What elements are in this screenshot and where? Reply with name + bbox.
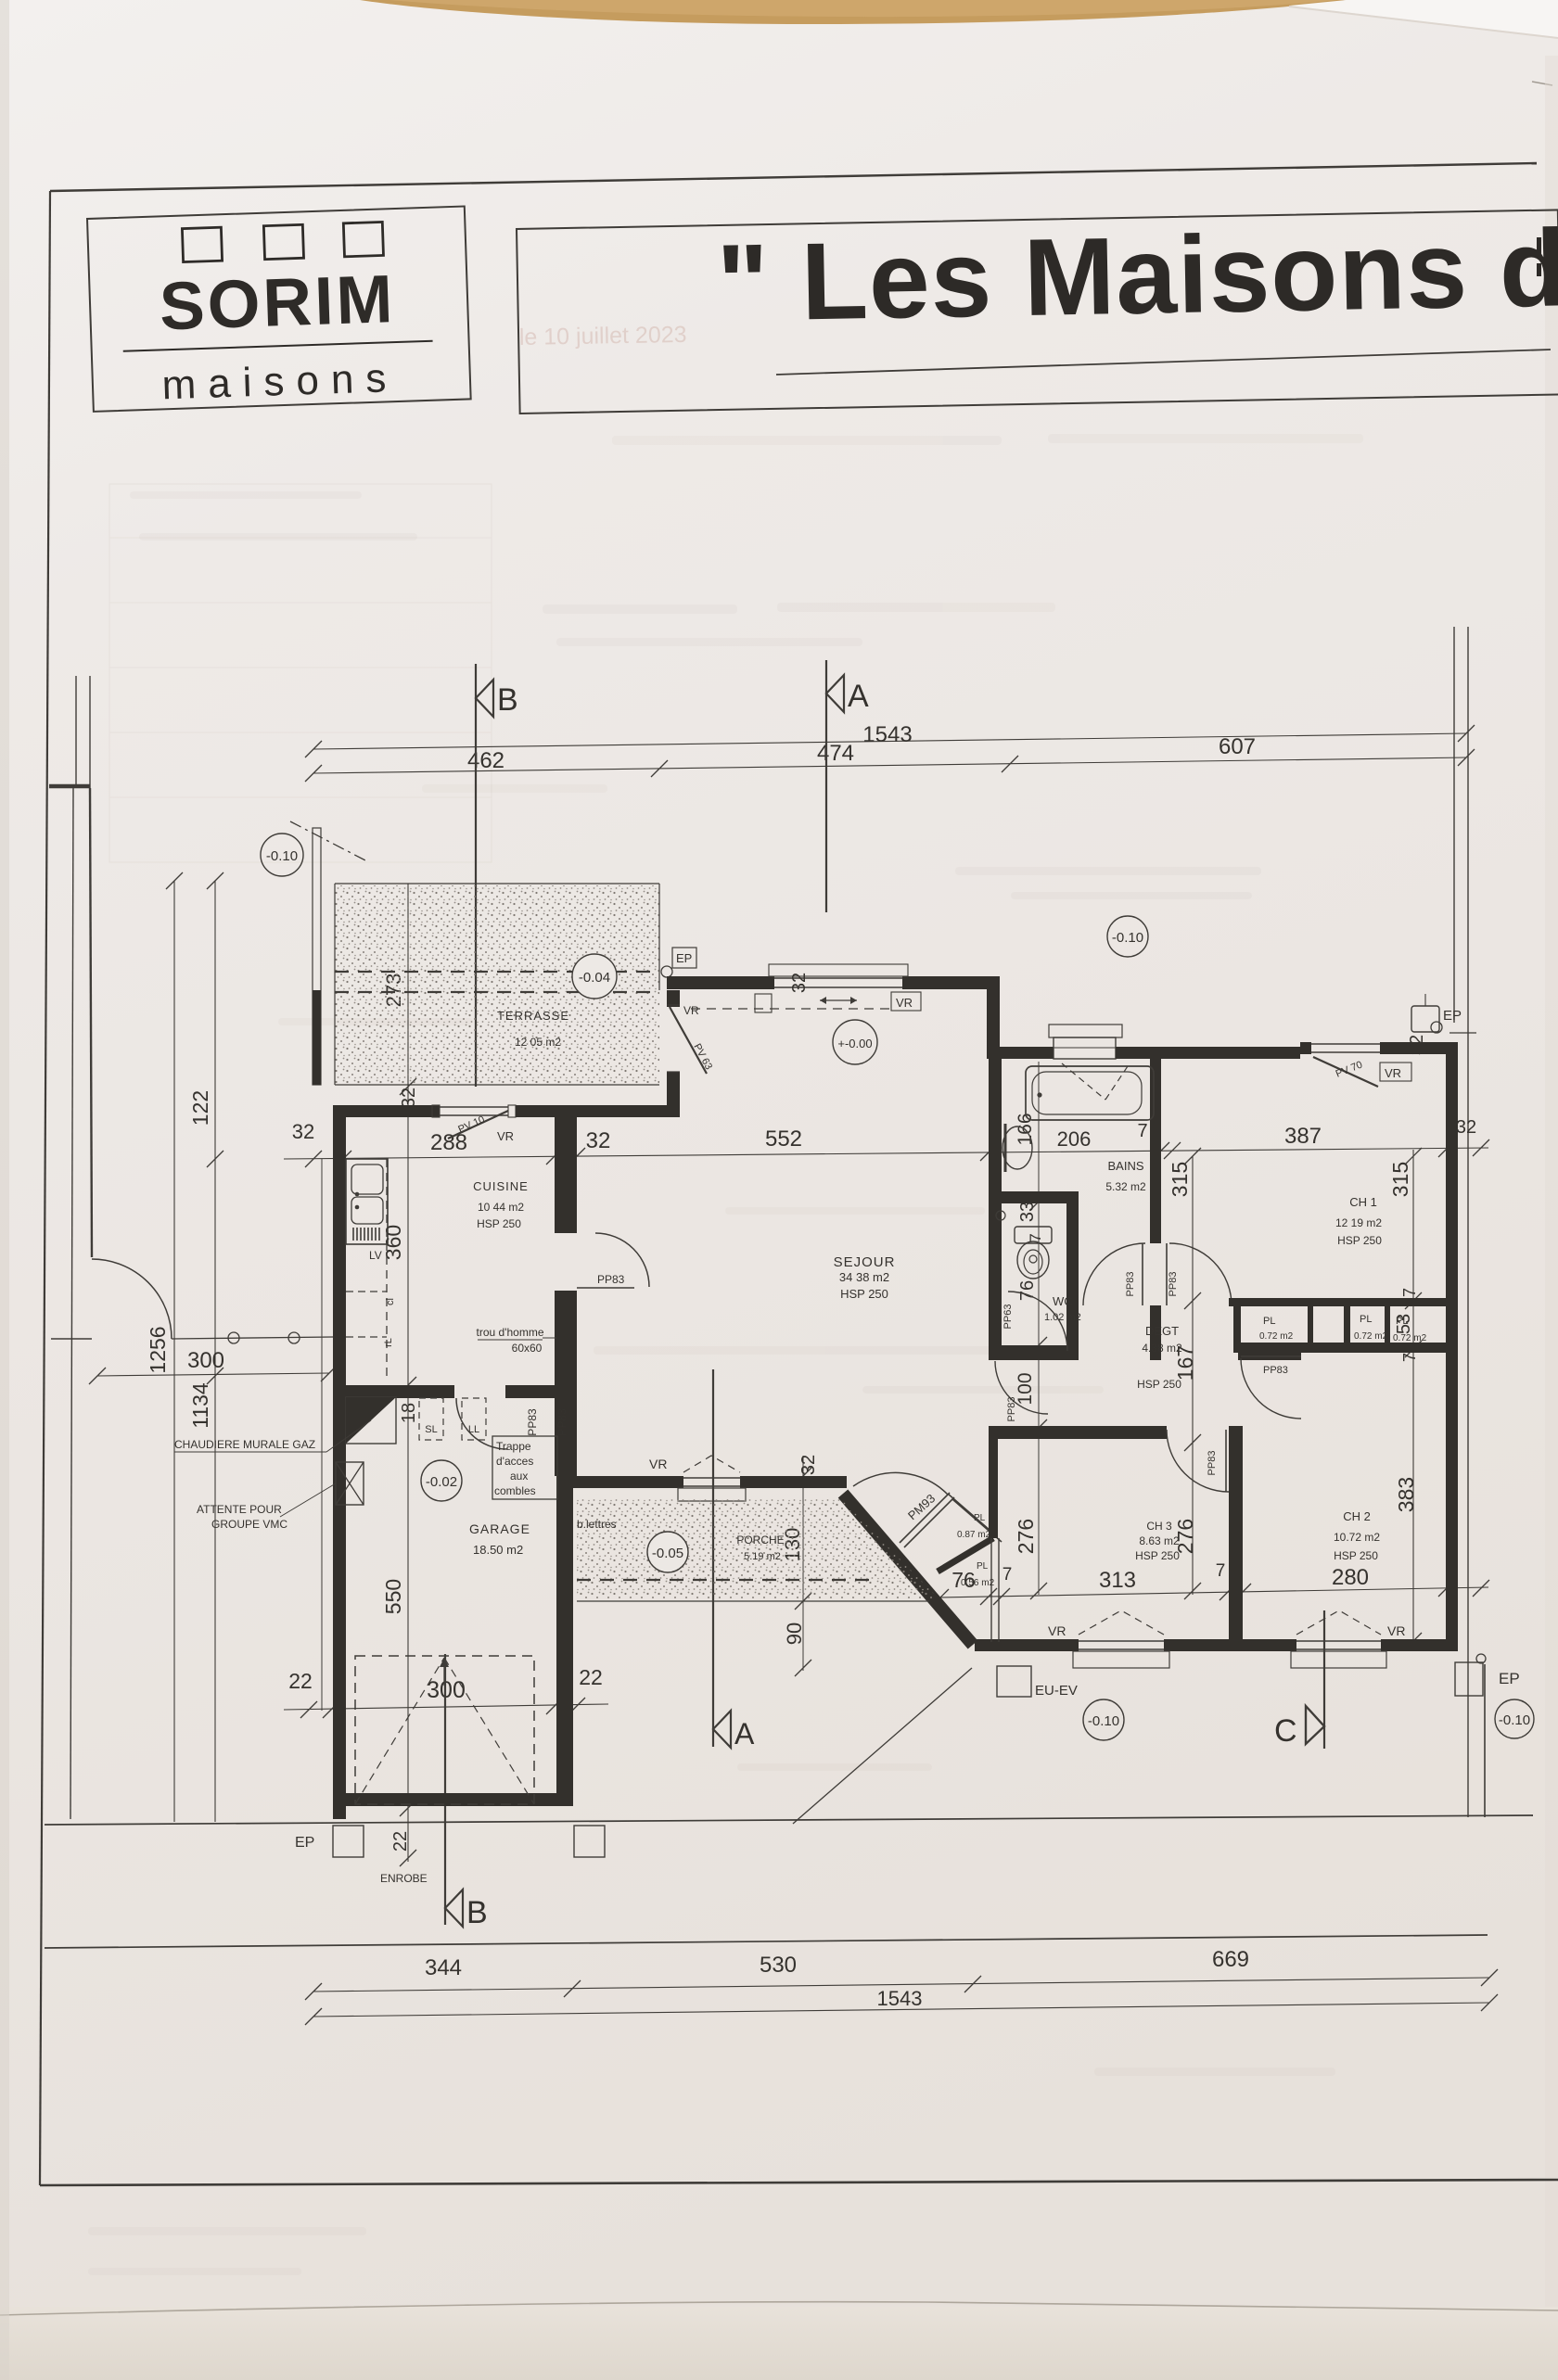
svg-text:" Les Maisons d: " Les Maisons d: [716, 207, 1558, 345]
svg-text:607: 607: [1219, 734, 1256, 759]
svg-text:PL: PL: [1360, 1314, 1372, 1325]
svg-text:-0.10: -0.10: [266, 848, 298, 864]
svg-text:12 19 m2: 12 19 m2: [1335, 1216, 1382, 1229]
svg-text:1134: 1134: [188, 1382, 212, 1429]
svg-text:18: 18: [399, 1403, 419, 1423]
svg-text:C: C: [1274, 1713, 1297, 1749]
svg-text:PP83: PP83: [526, 1408, 539, 1436]
svg-text:VR: VR: [497, 1129, 514, 1143]
svg-text:34 38 m2: 34 38 m2: [839, 1270, 889, 1284]
svg-text:PP83: PP83: [597, 1273, 625, 1286]
svg-text:550: 550: [381, 1579, 405, 1614]
svg-text:10.72 m2: 10.72 m2: [1334, 1531, 1380, 1544]
svg-text:HSP 250: HSP 250: [1337, 1234, 1382, 1247]
svg-text:EP: EP: [1443, 1008, 1462, 1024]
svg-text:VR: VR: [1048, 1623, 1066, 1638]
svg-text:0.72 m2: 0.72 m2: [1354, 1331, 1388, 1342]
svg-text:0.72 m2: 0.72 m2: [1393, 1333, 1427, 1343]
svg-text:PP83: PP83: [1207, 1451, 1218, 1476]
svg-text:276: 276: [1014, 1519, 1038, 1554]
svg-text:32: 32: [292, 1120, 314, 1143]
svg-text:HSP 250: HSP 250: [1137, 1378, 1181, 1391]
svg-text:PP83: PP83: [1263, 1365, 1288, 1376]
svg-text:7: 7: [1002, 1565, 1013, 1585]
svg-text:7: 7: [1400, 1288, 1419, 1297]
svg-text:VR: VR: [683, 1004, 699, 1017]
svg-text:4.38 m2: 4.38 m2: [1142, 1342, 1182, 1355]
svg-text:7: 7: [1400, 1353, 1419, 1362]
svg-text:LL: LL: [468, 1424, 479, 1435]
svg-text:PL: PL: [1263, 1316, 1275, 1327]
svg-text:0.72 m2: 0.72 m2: [1259, 1331, 1294, 1342]
svg-text:313: 313: [1099, 1568, 1136, 1593]
svg-text:PP83: PP83: [556, 1408, 568, 1436]
svg-text:315: 315: [1388, 1162, 1412, 1197]
svg-text:-0.05: -0.05: [652, 1546, 683, 1561]
svg-text:b.lettres: b.lettres: [577, 1518, 617, 1531]
svg-text:HSP 250: HSP 250: [1135, 1549, 1180, 1562]
svg-text:-0.10: -0.10: [1112, 930, 1143, 946]
svg-text:+-0.00: +-0.00: [837, 1037, 872, 1050]
svg-text:PL: PL: [974, 1513, 986, 1523]
svg-text:A: A: [734, 1717, 755, 1750]
svg-text:BAINS: BAINS: [1107, 1159, 1143, 1173]
svg-text:CUISINE: CUISINE: [473, 1179, 529, 1193]
svg-text:32: 32: [586, 1128, 611, 1153]
svg-text:A: A: [848, 679, 869, 714]
svg-text:d'acces: d'acces: [496, 1455, 533, 1468]
svg-text:100: 100: [1015, 1372, 1036, 1405]
svg-text:SORIM: SORIM: [159, 261, 397, 344]
svg-text:60x60: 60x60: [512, 1342, 543, 1355]
svg-text:18.50 m2: 18.50 m2: [473, 1543, 523, 1557]
svg-text:669: 669: [1212, 1947, 1249, 1972]
svg-text:552: 552: [765, 1126, 802, 1152]
svg-text:344: 344: [425, 1955, 462, 1980]
svg-text:0.56 m2: 0.56 m2: [961, 1578, 995, 1588]
svg-text:LV: LV: [369, 1249, 382, 1262]
svg-text:HSP 250: HSP 250: [1334, 1549, 1378, 1562]
svg-text:-0.04: -0.04: [579, 970, 610, 986]
svg-text:TERRASSE: TERRASSE: [497, 1009, 569, 1023]
svg-text:ENROBE: ENROBE: [380, 1872, 428, 1885]
svg-text:-0.10: -0.10: [1088, 1713, 1119, 1729]
svg-text:90: 90: [783, 1623, 806, 1645]
svg-text:maisons: maisons: [161, 355, 399, 408]
svg-text:12 05 m2: 12 05 m2: [515, 1036, 561, 1049]
svg-text:PP63: PP63: [1002, 1305, 1014, 1330]
svg-text:1543: 1543: [862, 722, 912, 747]
svg-text:EP: EP: [676, 951, 692, 965]
svg-text:EP: EP: [295, 1835, 314, 1851]
svg-text:VR: VR: [896, 996, 913, 1010]
svg-text:8.63 m2: 8.63 m2: [1139, 1534, 1180, 1547]
svg-text:300: 300: [187, 1348, 224, 1373]
svg-text:122: 122: [188, 1090, 212, 1126]
svg-text:7: 7: [1137, 1121, 1147, 1141]
svg-text:22: 22: [579, 1665, 603, 1689]
svg-text:cl: cl: [385, 1298, 396, 1305]
svg-text:PL: PL: [1396, 1316, 1408, 1327]
svg-text:33: 33: [1017, 1202, 1038, 1222]
svg-text:5.19 m2: 5.19 m2: [744, 1551, 781, 1562]
svg-text:462: 462: [467, 748, 504, 773]
svg-text:GARAGE: GARAGE: [469, 1521, 530, 1536]
svg-text:DEGT: DEGT: [1145, 1324, 1179, 1338]
svg-text:22: 22: [288, 1669, 313, 1693]
svg-text:1543: 1543: [877, 1987, 923, 2010]
svg-text:PP83: PP83: [1006, 1397, 1017, 1422]
svg-text:383: 383: [1394, 1477, 1418, 1512]
svg-text:VR: VR: [649, 1457, 667, 1471]
svg-text:32: 32: [1456, 1117, 1476, 1138]
svg-text:32: 32: [798, 1455, 819, 1475]
svg-text:7: 7: [1027, 1233, 1044, 1241]
svg-text:rL: rL: [383, 1338, 394, 1347]
svg-text:315: 315: [1168, 1162, 1192, 1197]
svg-text:Trappe: Trappe: [496, 1440, 531, 1453]
svg-text:B: B: [466, 1895, 488, 1930]
svg-text:1.02 m2: 1.02 m2: [1044, 1312, 1081, 1323]
svg-text:-0.02: -0.02: [426, 1474, 457, 1490]
svg-text:10 44 m2: 10 44 m2: [478, 1201, 524, 1214]
svg-text:GROUPE VMC: GROUPE VMC: [211, 1518, 287, 1531]
svg-text:EP: EP: [1499, 1670, 1520, 1687]
svg-text:387: 387: [1284, 1124, 1322, 1149]
svg-text:CH 1: CH 1: [1349, 1195, 1377, 1209]
svg-text:SL: SL: [425, 1424, 437, 1435]
svg-text:474: 474: [817, 741, 854, 766]
svg-text:HSP 250: HSP 250: [840, 1287, 888, 1301]
svg-text:360: 360: [381, 1225, 405, 1260]
svg-text:SEJOUR: SEJOUR: [834, 1254, 896, 1270]
svg-text:32: 32: [399, 1088, 419, 1108]
svg-text:VR: VR: [1387, 1623, 1405, 1638]
svg-text:22: 22: [390, 1831, 411, 1852]
svg-text:EU-EV: EU-EV: [1035, 1683, 1078, 1699]
svg-text:0.87 m2: 0.87 m2: [957, 1530, 991, 1540]
svg-text:CH 3: CH 3: [1146, 1520, 1172, 1533]
svg-text:VR: VR: [1385, 1066, 1401, 1080]
svg-text:PORCHE: PORCHE: [736, 1534, 784, 1546]
svg-text:ATTENTE POUR: ATTENTE POUR: [197, 1503, 282, 1516]
svg-text:B: B: [497, 682, 518, 718]
svg-text:5.32 m2: 5.32 m2: [1105, 1180, 1146, 1193]
svg-text:206: 206: [1057, 1127, 1092, 1151]
svg-text:280: 280: [1332, 1565, 1369, 1590]
svg-text:PP83: PP83: [1168, 1272, 1179, 1297]
svg-text:-0.10: -0.10: [1499, 1712, 1530, 1728]
svg-text:CHAUDIERE MURALE GAZ: CHAUDIERE MURALE GAZ: [174, 1438, 315, 1451]
svg-text:530: 530: [760, 1953, 797, 1978]
svg-text:combles: combles: [494, 1484, 536, 1497]
svg-text:7: 7: [1216, 1561, 1226, 1581]
svg-text:trou d'homme: trou d'homme: [477, 1326, 544, 1339]
svg-text:32: 32: [789, 973, 810, 993]
svg-text:1256: 1256: [146, 1326, 170, 1373]
svg-text:HSP 250: HSP 250: [477, 1217, 521, 1230]
svg-text:CH 2: CH 2: [1343, 1509, 1371, 1523]
svg-text:aux: aux: [510, 1470, 528, 1483]
svg-text:WC: WC: [1053, 1294, 1073, 1308]
svg-text:PP83: PP83: [1125, 1272, 1136, 1297]
svg-text:PL: PL: [977, 1561, 989, 1572]
svg-text:le 10 juillet 2023: le 10 juillet 2023: [519, 322, 687, 350]
